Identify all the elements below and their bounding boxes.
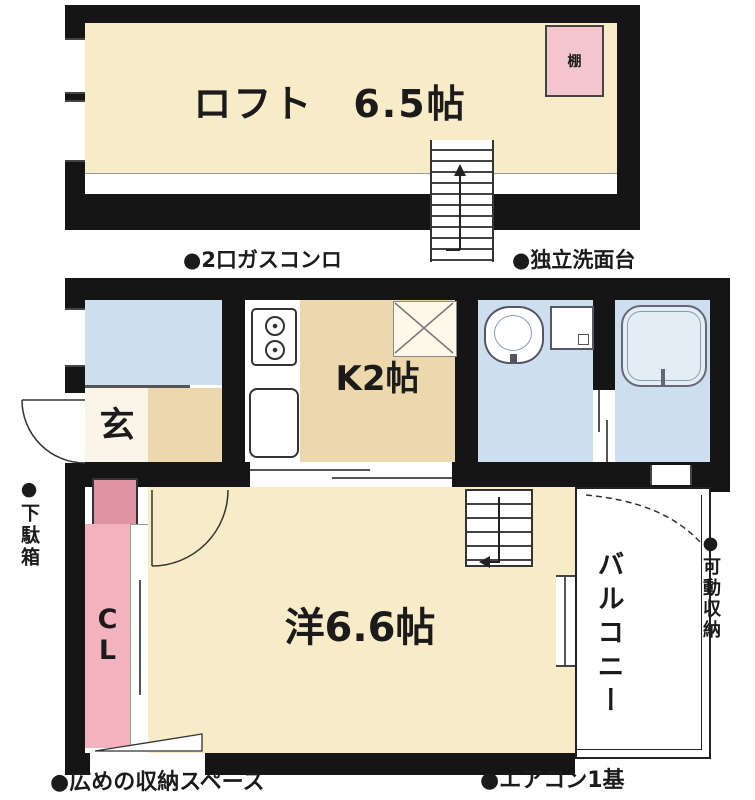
closet-label-text: CL	[92, 604, 123, 666]
vanity-annotation: ●独立洗面台	[512, 244, 635, 274]
wall-vanityroom-bath	[593, 300, 615, 390]
hallway	[148, 388, 222, 462]
movable-storage-annotation: ●可動収納	[697, 533, 723, 641]
door-line	[598, 390, 600, 432]
balcony-label-text: バルコニー	[589, 550, 628, 720]
stove-icon	[251, 308, 297, 366]
gas-stove-annotation: ●2口ガスコンロ	[183, 244, 342, 274]
bathtub-icon	[621, 305, 707, 387]
burner-icon	[265, 340, 285, 360]
bath-window	[650, 465, 692, 485]
living-label: 洋6.6帖	[180, 598, 540, 650]
washbasin-bowl-icon	[494, 315, 532, 351]
bathtub-notch	[661, 369, 665, 387]
aircon-annotation: ●エアコン1基	[480, 762, 625, 794]
kitchen-living-door	[250, 462, 452, 487]
lower-right-wall	[710, 278, 730, 492]
burner-icon	[265, 316, 285, 336]
shoe-box	[92, 478, 138, 526]
loft-edge-strip	[85, 173, 617, 194]
washbasin-icon	[484, 306, 544, 364]
toilet-room	[85, 300, 222, 385]
loft-window-upper	[65, 38, 85, 94]
toilet-window	[65, 308, 85, 367]
washer-pan-icon	[550, 306, 594, 350]
loft-shelf-label: 棚	[568, 51, 582, 71]
washbasin-tap-icon	[510, 354, 517, 363]
balcony-label: バルコニー	[588, 520, 628, 750]
wall-kitchen-vanityroom	[455, 300, 478, 462]
door-line	[139, 580, 141, 695]
door-line	[250, 469, 370, 471]
wall-entrance-kitchen	[222, 300, 245, 462]
refrigerator-space	[393, 301, 457, 357]
balcony-window	[556, 575, 575, 667]
floor-plan: 棚 ロフト 6.5帖 ●2口ガスコンロ ●独立洗面台 玄 K2帖	[0, 0, 755, 800]
vanity-bath-door	[593, 390, 615, 462]
wide-storage-annotation: ●広めの収納スペース	[50, 764, 265, 796]
entrance-label: 玄	[88, 395, 146, 450]
closet-door	[130, 524, 150, 750]
loft-room-label: ロフト 6.5帖	[140, 75, 520, 125]
shoe-box-annotation: ●下駄箱	[16, 478, 43, 569]
entrance-opening	[65, 393, 85, 463]
loft-window-lower	[65, 100, 85, 162]
window-line	[564, 577, 566, 665]
door-line	[606, 420, 608, 462]
loft-ladder	[430, 140, 494, 262]
staircase	[465, 489, 533, 567]
closet-label: CL	[85, 580, 130, 690]
door-line	[332, 477, 452, 479]
washer-drain-icon	[578, 334, 589, 345]
kitchen-label: K2帖	[300, 350, 455, 400]
loft-shelf: 棚	[545, 25, 604, 97]
sink-icon	[249, 388, 299, 458]
lower-top-wall	[65, 278, 730, 300]
